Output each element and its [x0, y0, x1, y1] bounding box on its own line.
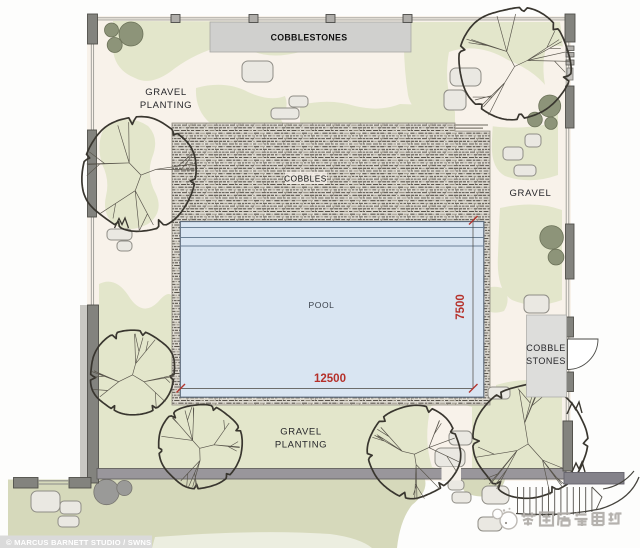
svg-text:GRAVEL: GRAVEL — [509, 188, 551, 199]
svg-text:© MARCUS BARNETT STUDIO / SWNS: © MARCUS BARNETT STUDIO / SWNS — [6, 538, 151, 547]
svg-text:POOL: POOL — [308, 300, 334, 310]
svg-text:COBBLES: COBBLES — [284, 174, 327, 184]
svg-text:7500: 7500 — [455, 294, 467, 320]
svg-text:PLANTING: PLANTING — [140, 100, 192, 111]
svg-text:PLANTING: PLANTING — [275, 440, 327, 451]
svg-text:GRAVEL: GRAVEL — [145, 87, 186, 98]
svg-text:COBBLESTONES: COBBLESTONES — [271, 33, 348, 43]
svg-text:GRAVEL: GRAVEL — [280, 427, 321, 438]
svg-text:12500: 12500 — [314, 373, 346, 385]
svg-text:STONES: STONES — [526, 356, 566, 366]
svg-text:COBBLE: COBBLE — [526, 343, 566, 353]
